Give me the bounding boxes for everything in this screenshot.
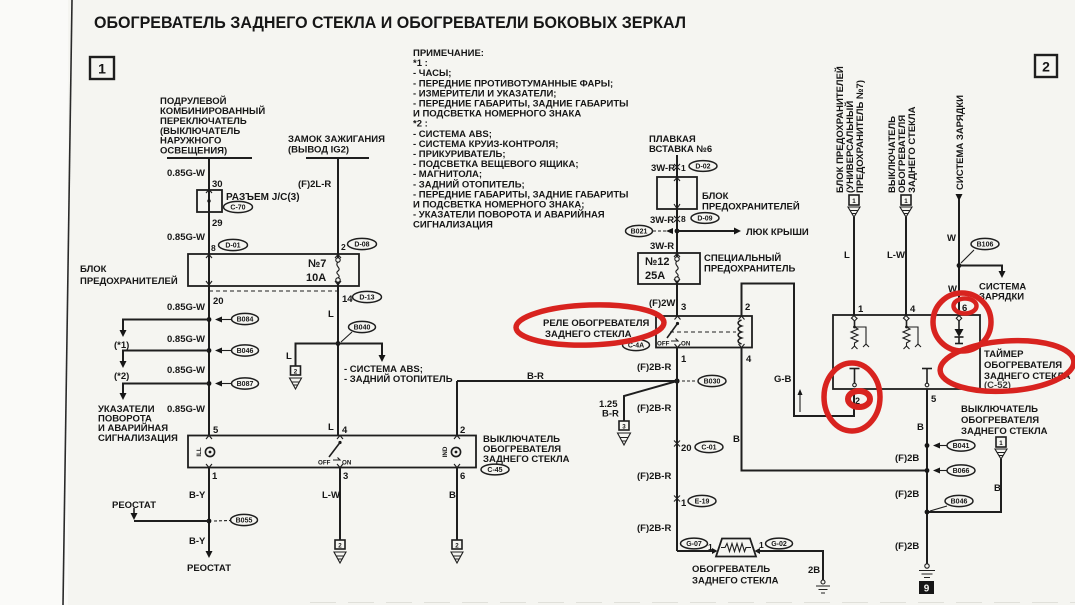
svg-text:B-R: B-R xyxy=(602,409,619,420)
svg-text:(F)2B: (F)2B xyxy=(895,541,919,552)
svg-text:ОСВЕЩЕНИЯ): ОСВЕЩЕНИЯ) xyxy=(160,146,227,157)
svg-text:4: 4 xyxy=(746,354,752,365)
svg-text:L: L xyxy=(286,351,292,362)
svg-text:L: L xyxy=(844,250,850,261)
svg-text:B055: B055 xyxy=(236,518,253,525)
svg-text:L-W: L-W xyxy=(322,490,340,501)
svg-text:8: 8 xyxy=(211,243,216,253)
svg-text:2: 2 xyxy=(455,543,459,550)
svg-text:B087: B087 xyxy=(237,381,254,388)
svg-text:B-Y: B-Y xyxy=(189,536,206,547)
svg-text:ВЫКЛЮЧАТЕЛЬ: ВЫКЛЮЧАТЕЛЬ xyxy=(961,404,1038,415)
svg-text:СИСТЕМА ЗАРЯДКИ: СИСТЕМА ЗАРЯДКИ xyxy=(955,95,966,190)
svg-text:B046: B046 xyxy=(237,348,254,355)
svg-text:0.85G-W: 0.85G-W xyxy=(167,168,205,179)
svg-text:D-09: D-09 xyxy=(697,216,712,223)
svg-text:2: 2 xyxy=(294,369,298,376)
svg-text:ПРЕДОХРАНИТЕЛЬ: ПРЕДОХРАНИТЕЛЬ xyxy=(704,264,795,275)
svg-text:ЛЮК КРЫШИ: ЛЮК КРЫШИ xyxy=(746,227,809,238)
svg-text:1: 1 xyxy=(904,198,908,205)
svg-text:C-4A: C-4A xyxy=(628,343,644,350)
svg-text:(F)2W: (F)2W xyxy=(649,298,675,309)
svg-text:B084: B084 xyxy=(237,317,254,324)
svg-text:5: 5 xyxy=(931,394,937,405)
svg-text:ЗАДНЕГО СТЕКЛА: ЗАДНЕГО СТЕКЛА xyxy=(907,106,918,193)
svg-text:(F)2B-R: (F)2B-R xyxy=(637,523,671,534)
svg-text:0.85G-W: 0.85G-W xyxy=(167,365,205,376)
svg-text:8: 8 xyxy=(681,214,686,224)
svg-text:ОБОГРЕВАТЕЛЬ ЗАДНЕГО СТЕКЛА И: ОБОГРЕВАТЕЛЬ ЗАДНЕГО СТЕКЛА И ОБОГРЕВАТЕ… xyxy=(94,13,686,32)
svg-text:4: 4 xyxy=(910,304,916,315)
svg-text:20: 20 xyxy=(213,296,224,307)
svg-text:C-70: C-70 xyxy=(230,205,245,212)
svg-text:2: 2 xyxy=(460,425,465,436)
svg-text:ПРЕДОХРАНИТЕЛЕЙ: ПРЕДОХРАНИТЕЛЕЙ xyxy=(80,275,178,287)
svg-text:1: 1 xyxy=(858,304,864,315)
svg-text:ВСТАВКА №6: ВСТАВКА №6 xyxy=(649,144,712,155)
svg-text:C-45: C-45 xyxy=(487,467,502,474)
svg-text:B021: B021 xyxy=(631,229,648,236)
svg-text:B040: B040 xyxy=(354,325,371,332)
svg-text:(F)2B-R: (F)2B-R xyxy=(637,403,671,414)
svg-text:СИГНАЛИЗАЦИЯ: СИГНАЛИЗАЦИЯ xyxy=(413,220,493,231)
svg-text:№12: №12 xyxy=(645,256,670,268)
svg-text:3: 3 xyxy=(622,424,626,431)
svg-text:ЗАРЯДКИ: ЗАРЯДКИ xyxy=(979,292,1024,303)
svg-text:2: 2 xyxy=(338,543,342,550)
svg-text:3W-R: 3W-R xyxy=(650,215,674,226)
svg-text:2: 2 xyxy=(341,242,346,252)
svg-text:9: 9 xyxy=(924,584,930,595)
svg-text:0.85G-W: 0.85G-W xyxy=(167,232,205,243)
svg-text:1: 1 xyxy=(681,354,687,365)
svg-text:(*2): (*2) xyxy=(114,371,129,382)
svg-text:D-13: D-13 xyxy=(359,295,374,302)
svg-text:5: 5 xyxy=(213,425,219,436)
svg-text:ЗАДНЕГО СТЕКЛА: ЗАДНЕГО СТЕКЛА xyxy=(483,454,570,465)
svg-text:ON: ON xyxy=(342,460,352,467)
svg-text:ПРЕДОХРАНИТЕЛЕЙ: ПРЕДОХРАНИТЕЛЕЙ xyxy=(702,201,800,213)
svg-text:B046: B046 xyxy=(951,499,968,506)
svg-text:ЗАМОК ЗАЖИГАНИЯ: ЗАМОК ЗАЖИГАНИЯ xyxy=(288,134,385,145)
svg-text:L: L xyxy=(328,422,334,433)
svg-text:1: 1 xyxy=(759,540,764,550)
svg-text:БЛОК: БЛОК xyxy=(80,264,107,275)
svg-text:1: 1 xyxy=(681,163,686,173)
svg-text:2B: 2B xyxy=(808,565,820,576)
svg-text:0.85G-W: 0.85G-W xyxy=(167,334,205,345)
svg-text:(F)2B: (F)2B xyxy=(895,453,919,464)
svg-text:G-B: G-B xyxy=(774,374,792,385)
svg-text:(F)2B: (F)2B xyxy=(895,489,919,500)
svg-text:РЕОСТАТ: РЕОСТАТ xyxy=(187,563,231,574)
svg-text:14: 14 xyxy=(342,294,353,305)
svg-text:0.85G-W: 0.85G-W xyxy=(167,302,205,313)
svg-text:2: 2 xyxy=(745,302,750,313)
svg-text:OFF: OFF xyxy=(318,460,331,467)
svg-text:1: 1 xyxy=(212,471,218,482)
svg-text:РЕЛЕ ОБОГРЕВАТЕЛЯ: РЕЛЕ ОБОГРЕВАТЕЛЯ xyxy=(543,318,650,329)
svg-text:ОБОГРЕВАТЕЛЯ: ОБОГРЕВАТЕЛЯ xyxy=(961,415,1039,426)
svg-text:ОБОГРЕВАТЕЛЬ: ОБОГРЕВАТЕЛЬ xyxy=(692,564,770,575)
svg-text:№7: №7 xyxy=(308,258,326,270)
svg-text:1: 1 xyxy=(999,440,1003,447)
svg-text:B030: B030 xyxy=(704,379,721,386)
svg-text:E-19: E-19 xyxy=(695,499,710,506)
svg-text:(F)2B-R: (F)2B-R xyxy=(637,362,671,373)
svg-text:ON: ON xyxy=(681,341,691,348)
svg-text:G-02: G-02 xyxy=(771,541,787,548)
svg-text:29: 29 xyxy=(212,218,223,229)
svg-text:ТАЙМЕР: ТАЙМЕР xyxy=(984,348,1024,360)
svg-text:C-01: C-01 xyxy=(701,445,716,452)
svg-text:ЗАДНЕГО СТЕКЛА: ЗАДНЕГО СТЕКЛА xyxy=(961,426,1048,437)
svg-text:ПРЕДОХРАНИТЕЛЬ №7): ПРЕДОХРАНИТЕЛЬ №7) xyxy=(855,80,866,193)
svg-text:1: 1 xyxy=(852,198,856,205)
svg-text:D-08: D-08 xyxy=(354,242,369,249)
svg-text:ЗАДНЕГО СТЕКЛА: ЗАДНЕГО СТЕКЛА xyxy=(692,576,779,587)
svg-text:B066: B066 xyxy=(953,468,970,475)
svg-text:3W-R: 3W-R xyxy=(651,163,675,174)
svg-text:W: W xyxy=(947,233,956,244)
svg-text:20: 20 xyxy=(681,443,692,454)
svg-text:B041: B041 xyxy=(953,443,970,450)
svg-text:10A: 10A xyxy=(306,272,326,284)
svg-text:IND: IND xyxy=(442,446,449,457)
svg-text:L-W: L-W xyxy=(887,250,905,261)
svg-text:1: 1 xyxy=(681,498,687,509)
svg-text:L: L xyxy=(328,309,334,320)
svg-text:3W-R: 3W-R xyxy=(650,241,674,252)
svg-text:G-07: G-07 xyxy=(686,541,702,548)
svg-text:СПЕЦИАЛЬНЫЙ: СПЕЦИАЛЬНЫЙ xyxy=(704,252,781,264)
svg-text:25A: 25A xyxy=(645,270,665,282)
svg-text:(*1): (*1) xyxy=(114,340,129,351)
svg-text:2: 2 xyxy=(1042,59,1050,75)
svg-text:РЕОСТАТ: РЕОСТАТ xyxy=(112,500,156,511)
svg-text:(ВЫВОД IG2): (ВЫВОД IG2) xyxy=(288,145,349,156)
svg-text:СИГНАЛИЗАЦИЯ: СИГНАЛИЗАЦИЯ xyxy=(98,433,178,444)
svg-text:B106: B106 xyxy=(977,242,994,249)
svg-text:1: 1 xyxy=(98,61,106,77)
svg-text:- ЗАДНИЙ ОТОПИТЕЛЬ: - ЗАДНИЙ ОТОПИТЕЛЬ xyxy=(344,373,453,385)
svg-text:0.85G-W: 0.85G-W xyxy=(167,404,205,415)
svg-text:B: B xyxy=(917,422,924,433)
svg-text:D-02: D-02 xyxy=(695,164,710,171)
svg-text:ОБОГРЕВАТЕЛЯ: ОБОГРЕВАТЕЛЯ xyxy=(984,360,1062,371)
svg-text:3: 3 xyxy=(681,302,686,313)
svg-text:(F)2L-R: (F)2L-R xyxy=(298,179,331,190)
svg-text:(F)2B-R: (F)2B-R xyxy=(637,471,671,482)
svg-text:6: 6 xyxy=(460,471,465,482)
svg-text:B-R: B-R xyxy=(527,371,544,382)
svg-text:ЗАДНЕГО СТЕКЛА: ЗАДНЕГО СТЕКЛА xyxy=(545,329,632,340)
svg-text:4: 4 xyxy=(342,425,348,436)
svg-text:3: 3 xyxy=(343,471,348,482)
svg-text:B: B xyxy=(449,490,456,501)
svg-text:OFF: OFF xyxy=(657,341,670,348)
svg-text:D-01: D-01 xyxy=(225,243,240,250)
svg-text:B: B xyxy=(733,434,740,445)
svg-text:30: 30 xyxy=(212,179,223,190)
svg-text:ILL: ILL xyxy=(196,447,203,456)
svg-text:B-Y: B-Y xyxy=(189,490,206,501)
svg-text:B: B xyxy=(994,483,1001,494)
svg-text:И ПОДСВЕТКА НОМЕРНОГО ЗНАКА: И ПОДСВЕТКА НОМЕРНОГО ЗНАКА xyxy=(413,109,581,120)
svg-text:БЛОК: БЛОК xyxy=(702,191,729,202)
